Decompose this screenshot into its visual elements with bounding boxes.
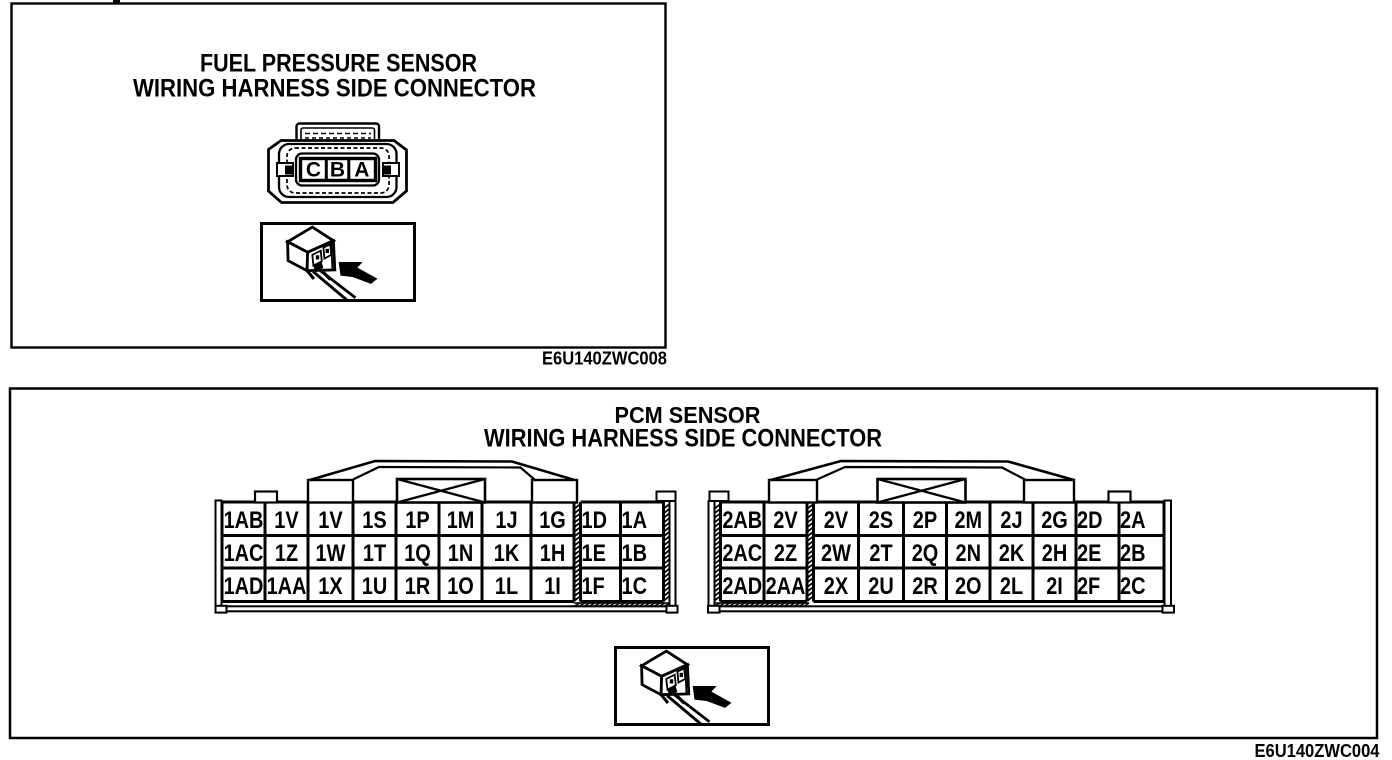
svg-text:1V: 1V: [318, 507, 342, 534]
svg-text:1AA: 1AA: [267, 573, 307, 600]
svg-text:1Q: 1Q: [404, 540, 431, 567]
svg-text:1J: 1J: [495, 507, 517, 534]
svg-text:1Z: 1Z: [275, 540, 298, 567]
svg-text:2U: 2U: [868, 573, 894, 600]
svg-text:2Z: 2Z: [774, 540, 797, 567]
svg-text:2AB: 2AB: [722, 507, 762, 534]
svg-text:2AC: 2AC: [722, 540, 762, 567]
svg-text:2W: 2W: [821, 540, 851, 567]
svg-text:2T: 2T: [869, 540, 892, 567]
svg-text:B: B: [330, 158, 345, 181]
svg-text:C: C: [306, 158, 321, 181]
svg-text:E6U140ZWC008: E6U140ZWC008: [542, 348, 667, 369]
svg-text:2D: 2D: [1077, 507, 1103, 534]
svg-text:2G: 2G: [1041, 507, 1068, 534]
svg-text:1X: 1X: [318, 573, 342, 600]
svg-text:2V: 2V: [824, 507, 848, 534]
svg-text:1O: 1O: [447, 573, 474, 600]
svg-text:1U: 1U: [362, 573, 388, 600]
svg-text:1G: 1G: [539, 507, 566, 534]
svg-text:2C: 2C: [1120, 573, 1146, 600]
svg-text:1N: 1N: [448, 540, 474, 567]
svg-text:2O: 2O: [955, 573, 982, 600]
svg-text:E6U140ZWC004: E6U140ZWC004: [1255, 740, 1381, 760]
svg-text:1AB: 1AB: [224, 507, 264, 534]
svg-text:1K: 1K: [494, 540, 520, 567]
svg-text:2I: 2I: [1046, 573, 1063, 600]
svg-text:2L: 2L: [1000, 573, 1023, 600]
svg-text:WIRING HARNESS SIDE CONNECTOR: WIRING HARNESS SIDE CONNECTOR: [484, 424, 882, 452]
svg-text:1H: 1H: [540, 540, 566, 567]
svg-text:2E: 2E: [1077, 540, 1101, 567]
svg-text:2S: 2S: [869, 507, 893, 534]
svg-text:1T: 1T: [363, 540, 386, 567]
svg-text:2B: 2B: [1120, 540, 1146, 567]
svg-text:1B: 1B: [622, 540, 648, 567]
svg-text:A: A: [354, 158, 369, 181]
svg-text:1S: 1S: [362, 507, 386, 534]
svg-text:1AC: 1AC: [224, 540, 264, 567]
svg-text:2A: 2A: [1120, 507, 1146, 534]
svg-text:1D: 1D: [582, 507, 608, 534]
svg-text:WIRING HARNESS SIDE CONNECTOR: WIRING HARNESS SIDE CONNECTOR: [133, 74, 536, 102]
svg-text:1AD: 1AD: [224, 573, 264, 600]
svg-text:1C: 1C: [622, 573, 648, 600]
svg-text:2P: 2P: [913, 507, 937, 534]
svg-text:2F: 2F: [1077, 573, 1100, 600]
svg-text:2J: 2J: [1000, 507, 1022, 534]
svg-text:2AD: 2AD: [722, 573, 762, 600]
svg-text:1V: 1V: [274, 507, 298, 534]
svg-text:2Q: 2Q: [912, 540, 939, 567]
svg-text:2AA: 2AA: [766, 573, 806, 600]
svg-text:1M: 1M: [447, 507, 475, 534]
svg-text:1A: 1A: [622, 507, 648, 534]
svg-text:1W: 1W: [316, 540, 346, 567]
svg-text:2R: 2R: [912, 573, 938, 600]
svg-text:2X: 2X: [824, 573, 848, 600]
svg-text:2K: 2K: [999, 540, 1025, 567]
svg-text:2M: 2M: [954, 507, 982, 534]
svg-text:2H: 2H: [1042, 540, 1068, 567]
svg-text:1F: 1F: [582, 573, 605, 600]
svg-text:1R: 1R: [405, 573, 431, 600]
svg-text:1E: 1E: [582, 540, 606, 567]
svg-text:1L: 1L: [495, 573, 518, 600]
svg-text:1I: 1I: [544, 573, 561, 600]
svg-text:2N: 2N: [956, 540, 982, 567]
svg-text:1P: 1P: [405, 507, 429, 534]
svg-text:2V: 2V: [773, 507, 797, 534]
